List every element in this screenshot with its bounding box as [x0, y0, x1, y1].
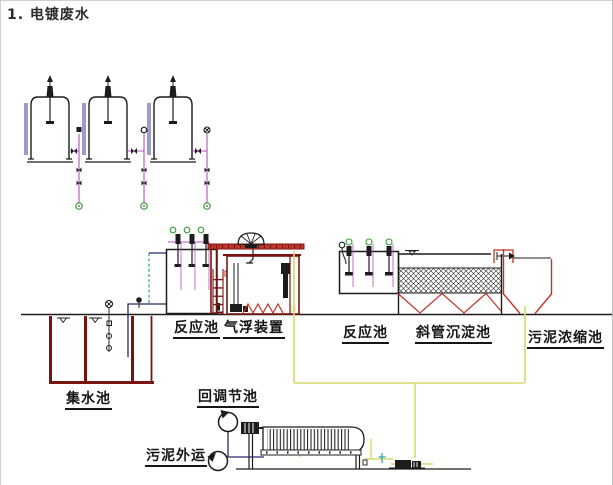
- diagram-page: 1. 电镀废水: [0, 0, 613, 485]
- filtrate-pipe-navy: [228, 432, 264, 457]
- label-settling-tank: 斜管沉淀池: [415, 326, 492, 344]
- effluent-weir-box: [494, 250, 551, 263]
- label-sludge-hauling: 污泥外运: [145, 449, 207, 467]
- process-flow-diagram: [1, 1, 613, 485]
- filter-press: [241, 422, 367, 469]
- label-collection-tank: 集水池: [65, 392, 112, 410]
- dosing-tank-1: [25, 75, 82, 209]
- return-pump: [219, 410, 238, 432]
- settling-tank: [398, 250, 551, 314]
- settling-hoppers: [398, 294, 501, 314]
- dosing-tank-3: [148, 75, 210, 209]
- filter-plates: [267, 429, 349, 450]
- thickening-tank: [504, 249, 552, 383]
- collection-tank: [49, 301, 154, 383]
- air-flotation-unit: [208, 233, 304, 383]
- label-reaction-tank-2: 反应池: [342, 326, 389, 344]
- sludge-out-pump: [208, 452, 228, 471]
- label-return-tank: 回调节池: [197, 390, 259, 408]
- label-air-flotation: 气浮装置: [223, 321, 285, 339]
- collection-tank-dosing-string: [106, 301, 113, 353]
- label-thickening-tank: 污泥浓缩池: [527, 331, 604, 349]
- reaction-tank-1: [167, 227, 217, 313]
- inclined-tube-media: [399, 268, 502, 293]
- label-reaction-tank-1: 反应池: [173, 321, 220, 339]
- sludge-feed-pump: [379, 453, 426, 469]
- reaction-tank-2: [339, 239, 398, 294]
- dosing-tank-2: [83, 75, 147, 209]
